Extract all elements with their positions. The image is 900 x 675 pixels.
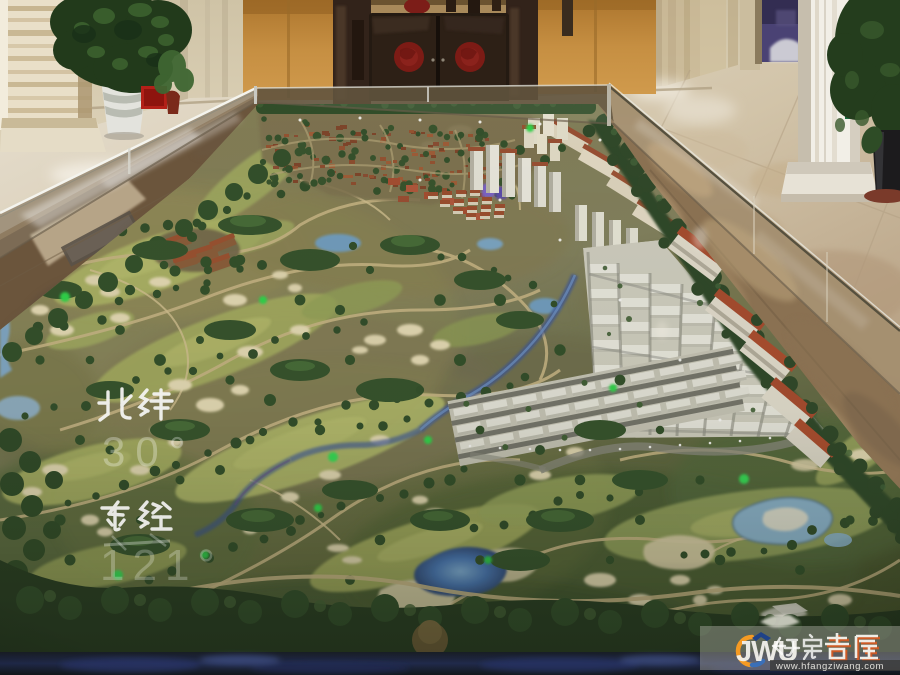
- svg-text:121°: 121°: [100, 541, 223, 590]
- svg-text:30°: 30°: [102, 428, 196, 475]
- svg-text:www.hfangziwang.com: www.hfangziwang.com: [775, 661, 884, 672]
